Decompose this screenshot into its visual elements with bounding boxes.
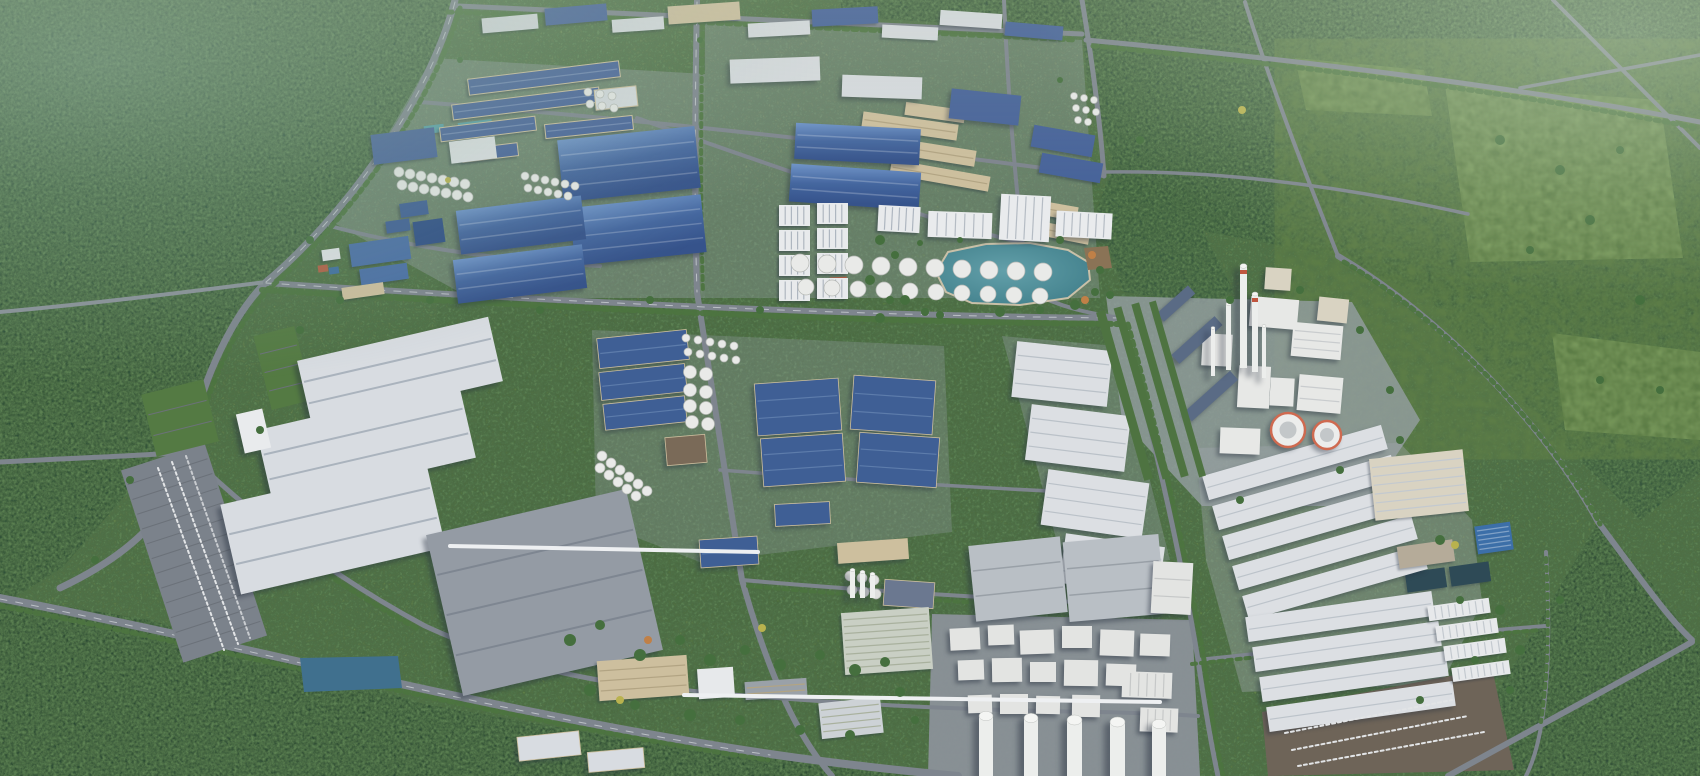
aerial-scene-canvas	[0, 0, 1700, 776]
industrial-park-aerial-rendering	[0, 0, 1700, 776]
atmosphere-haze	[0, 0, 1700, 776]
atmosphere-haze-item	[0, 0, 1700, 776]
